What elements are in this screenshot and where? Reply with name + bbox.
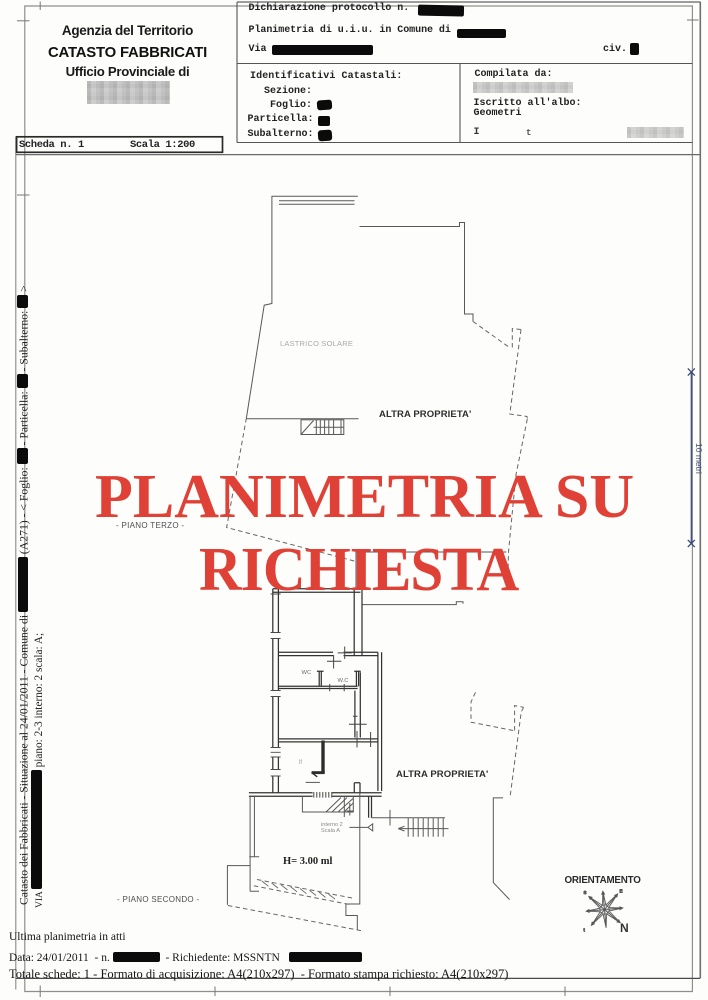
svg-text:E: E <box>620 889 623 894</box>
svg-text:t: t <box>584 928 586 933</box>
svg-text:S: S <box>584 890 587 895</box>
